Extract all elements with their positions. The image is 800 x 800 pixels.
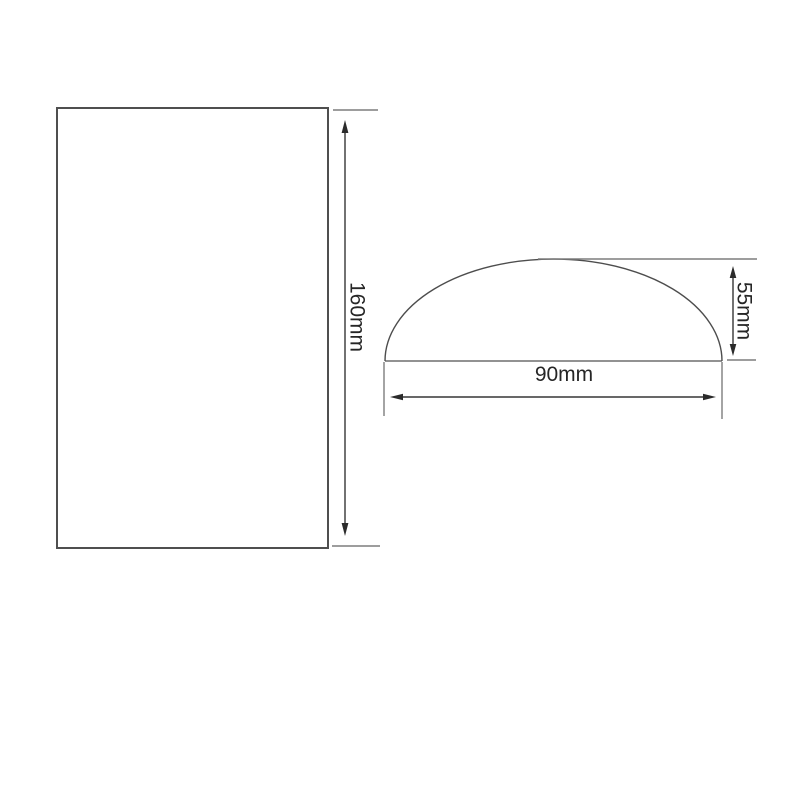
dome-arc: [385, 259, 722, 361]
technical-drawing-canvas: 160mm 55mm 90mm: [0, 0, 800, 800]
arrowhead-up-icon: [730, 266, 737, 278]
height-dimension-160: 160mm: [332, 110, 380, 546]
width-dimension-90: 90mm: [384, 362, 722, 419]
panel-outline: [57, 108, 328, 548]
height-dimension-label: 160mm: [346, 282, 369, 352]
dome-width-label: 90mm: [535, 363, 593, 386]
arrowhead-right-icon: [703, 394, 716, 401]
dome-height-label: 55mm: [733, 282, 756, 340]
arrowhead-down-icon: [730, 344, 737, 356]
arrowhead-up-icon: [342, 120, 349, 133]
arrowhead-down-icon: [342, 523, 349, 536]
height-dimension-55: 55mm: [538, 259, 757, 360]
dimension-drawing: 160mm 55mm 90mm: [0, 0, 800, 800]
dome-profile-view: 55mm 90mm: [384, 259, 757, 419]
arrowhead-left-icon: [390, 394, 403, 401]
front-panel-view: 160mm: [57, 108, 380, 548]
